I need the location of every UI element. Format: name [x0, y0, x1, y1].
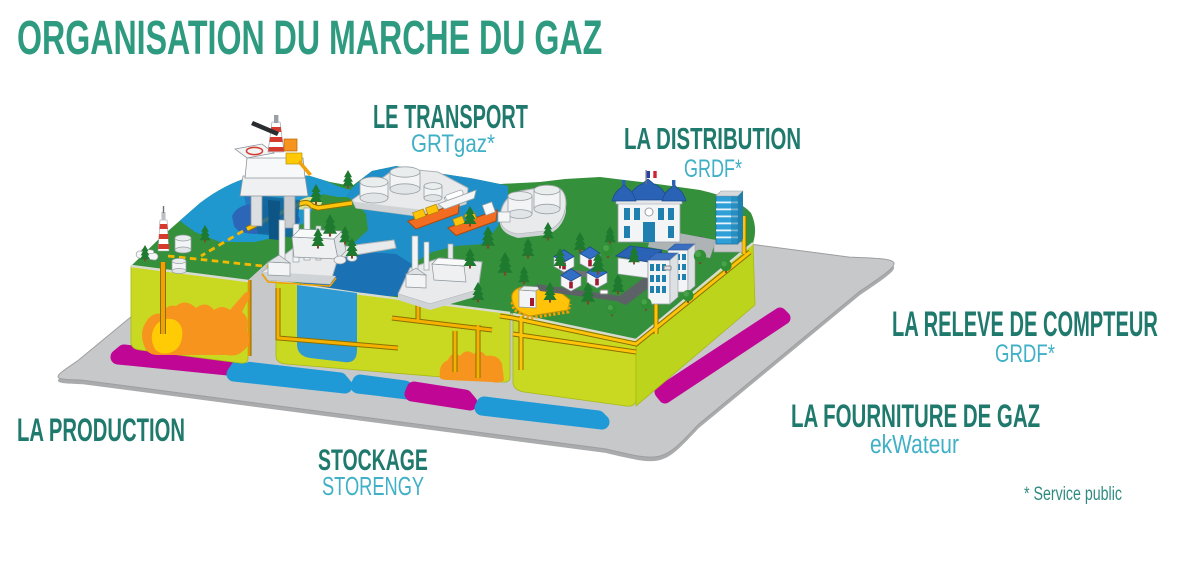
svg-text:LA FOURNITURE DE GAZ: LA FOURNITURE DE GAZ: [791, 398, 1040, 434]
svg-text:GRDF*: GRDF*: [995, 339, 1055, 367]
svg-text:ORGANISATION DU MARCHE DU GAZ: ORGANISATION DU MARCHE DU GAZ: [17, 11, 602, 65]
svg-text:ekWateur: ekWateur: [870, 431, 959, 460]
svg-text:LA DISTRIBUTION: LA DISTRIBUTION: [624, 121, 801, 156]
svg-text:LA PRODUCTION: LA PRODUCTION: [17, 412, 185, 448]
svg-text:GRDF*: GRDF*: [684, 154, 742, 183]
svg-text:STORENGY: STORENGY: [322, 472, 424, 501]
svg-text:GRTgaz*: GRTgaz*: [411, 129, 495, 157]
svg-text:* Service public: * Service public: [1024, 483, 1122, 505]
